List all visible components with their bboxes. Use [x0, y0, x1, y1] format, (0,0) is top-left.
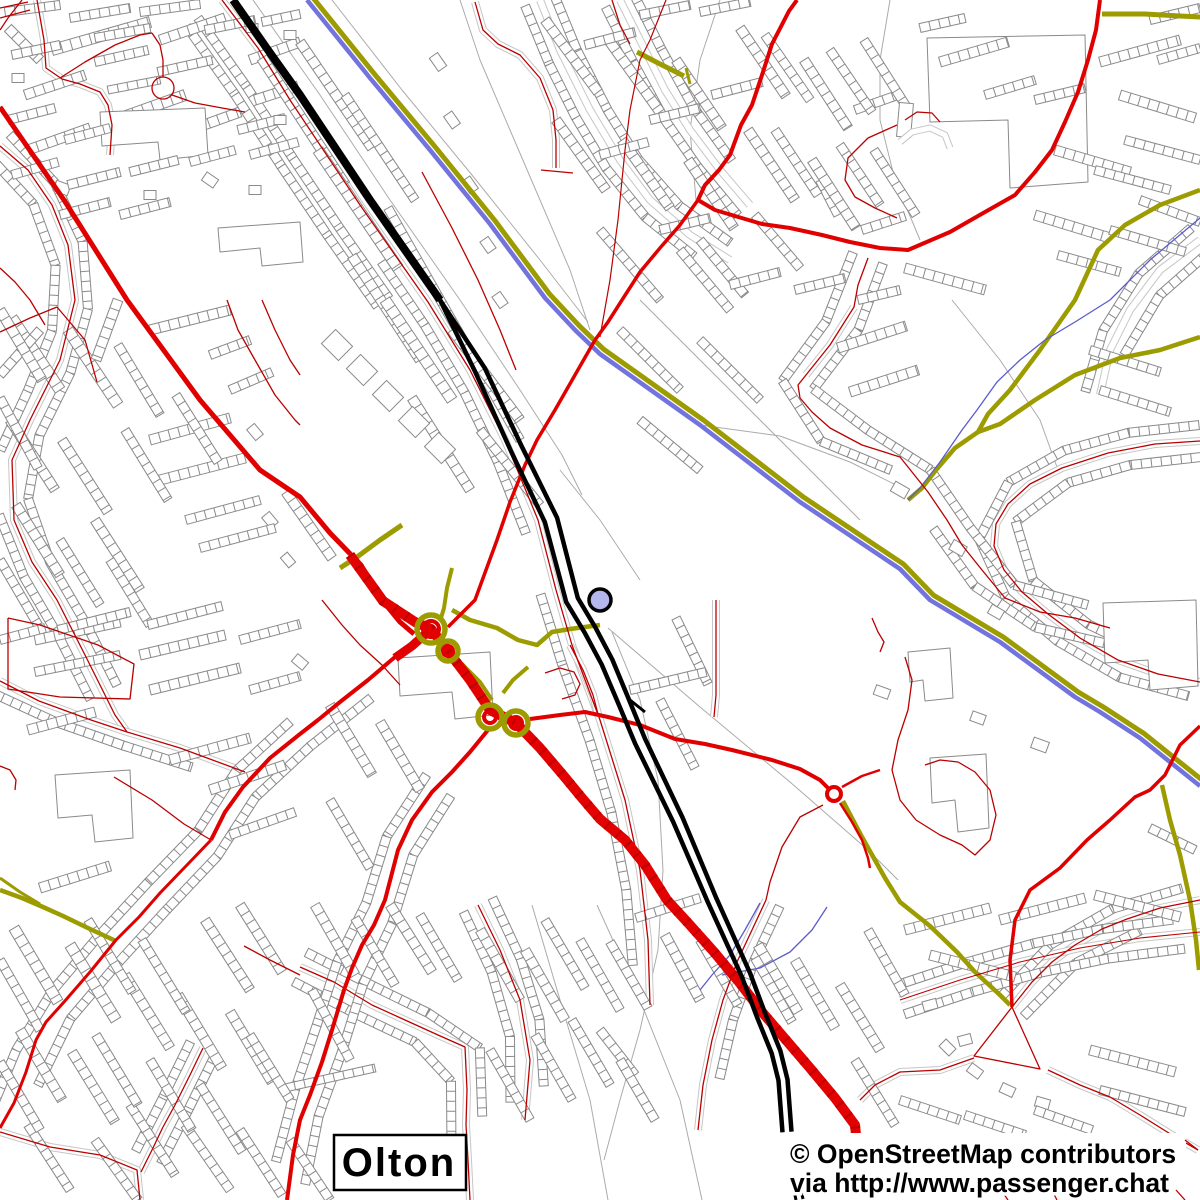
svg-text:via http://www.passenger.chat: via http://www.passenger.chat — [790, 1168, 1169, 1198]
svg-text:Olton: Olton — [342, 1141, 456, 1185]
svg-text:© OpenStreetMap contributors: © OpenStreetMap contributors — [790, 1139, 1176, 1169]
